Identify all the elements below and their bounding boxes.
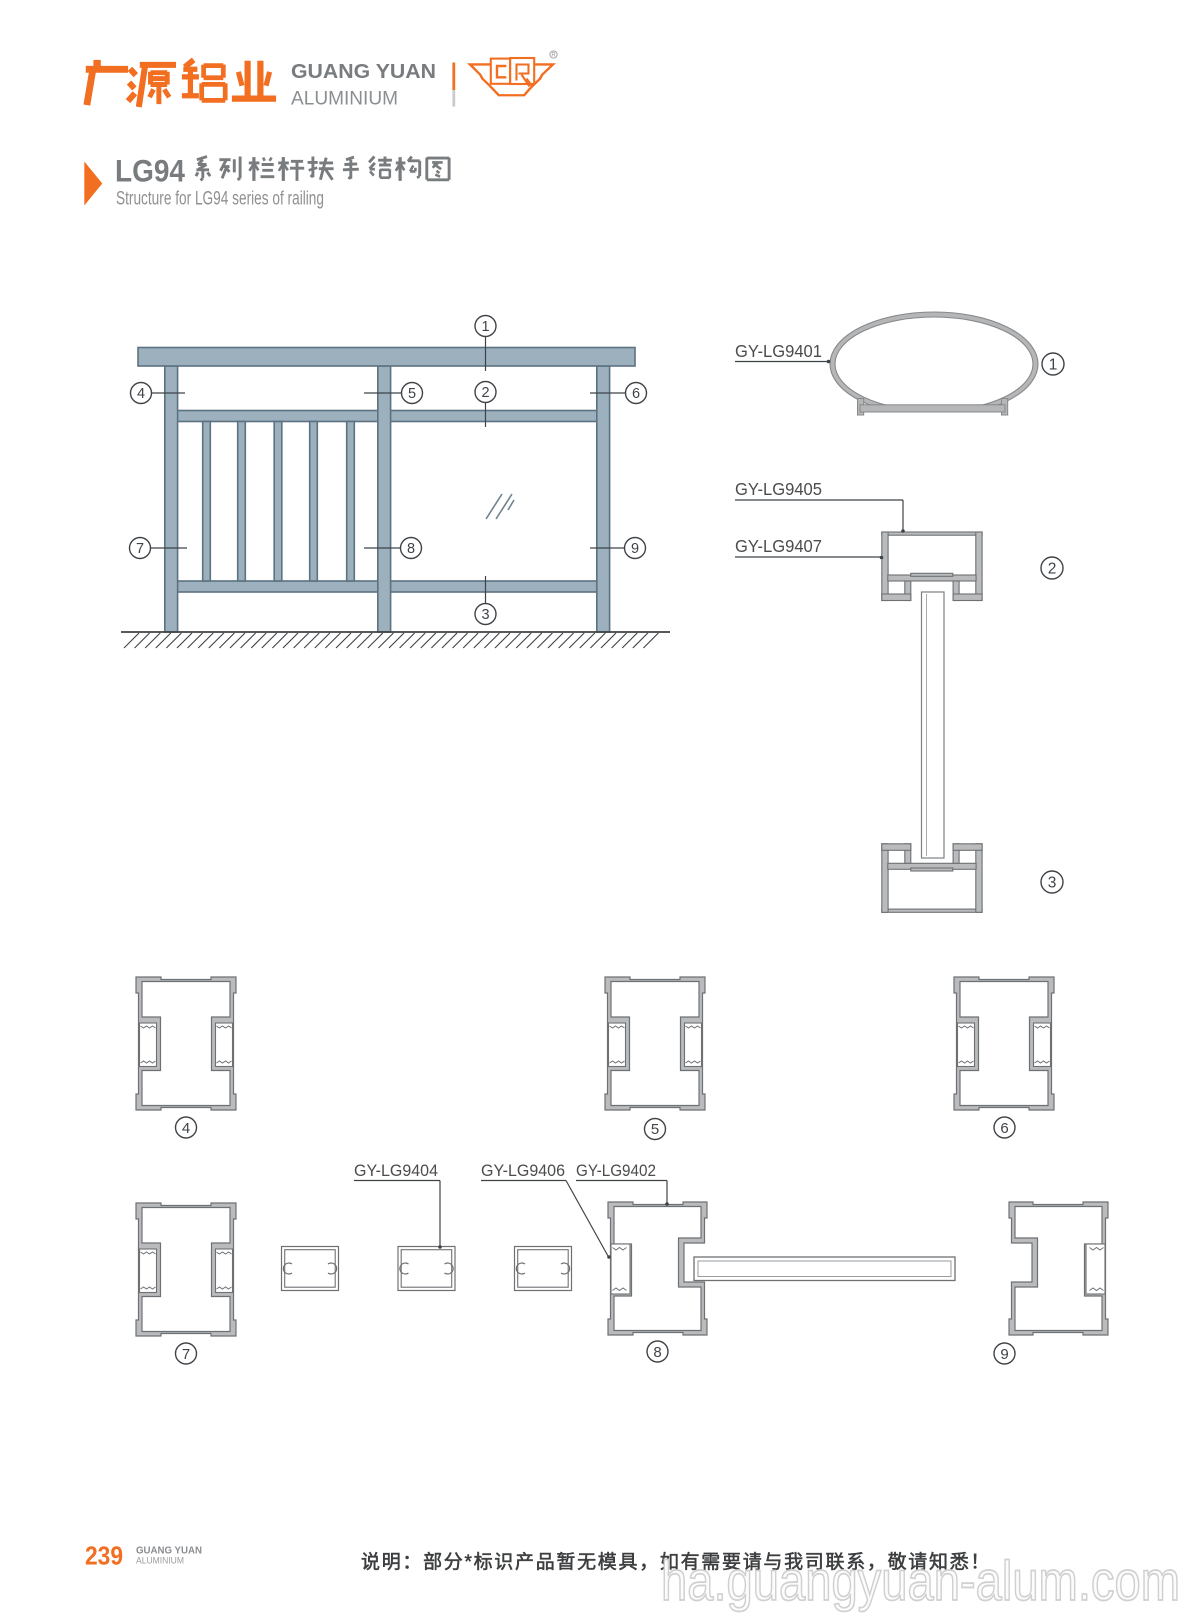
svg-text:Structure for LG94 series of r: Structure for LG94 series of railing xyxy=(116,189,324,210)
svg-text:7: 7 xyxy=(136,541,144,557)
svg-text:ALUMINIUM: ALUMINIUM xyxy=(291,88,398,110)
svg-text:GY-LG9406: GY-LG9406 xyxy=(481,1161,565,1180)
svg-text:7: 7 xyxy=(182,1346,190,1363)
svg-text:GY-LG9407: GY-LG9407 xyxy=(735,536,822,556)
svg-text:GY-LG9402: GY-LG9402 xyxy=(576,1161,656,1180)
svg-text:ha.guangyuan-alum.com: ha.guangyuan-alum.com xyxy=(661,1554,1180,1612)
svg-text:4: 4 xyxy=(182,1120,190,1137)
svg-text:2: 2 xyxy=(1048,560,1057,577)
svg-text:8: 8 xyxy=(407,541,415,557)
svg-text:GY-LG9405: GY-LG9405 xyxy=(735,479,822,499)
svg-text:2: 2 xyxy=(481,385,489,401)
svg-text:6: 6 xyxy=(632,386,640,402)
svg-text:1: 1 xyxy=(481,319,489,335)
svg-text:4: 4 xyxy=(137,386,145,402)
svg-text:1: 1 xyxy=(1049,356,1058,373)
svg-text:9: 9 xyxy=(631,541,639,557)
svg-text:GY-LG9404: GY-LG9404 xyxy=(354,1161,438,1180)
svg-text:R: R xyxy=(551,53,556,59)
svg-text:GUANG YUAN: GUANG YUAN xyxy=(291,61,436,83)
svg-text:5: 5 xyxy=(408,386,416,402)
svg-text:LG94: LG94 xyxy=(115,153,185,189)
svg-text:GY-LG9401: GY-LG9401 xyxy=(735,341,822,361)
svg-text:6: 6 xyxy=(1000,1120,1008,1137)
svg-text:5: 5 xyxy=(651,1121,659,1138)
svg-text:ALUMINIUM: ALUMINIUM xyxy=(136,1556,184,1566)
svg-text:9: 9 xyxy=(1000,1346,1008,1363)
svg-text:3: 3 xyxy=(1048,874,1057,891)
svg-text:8: 8 xyxy=(653,1344,661,1361)
svg-text:239: 239 xyxy=(85,1541,123,1571)
svg-text:3: 3 xyxy=(481,607,489,623)
